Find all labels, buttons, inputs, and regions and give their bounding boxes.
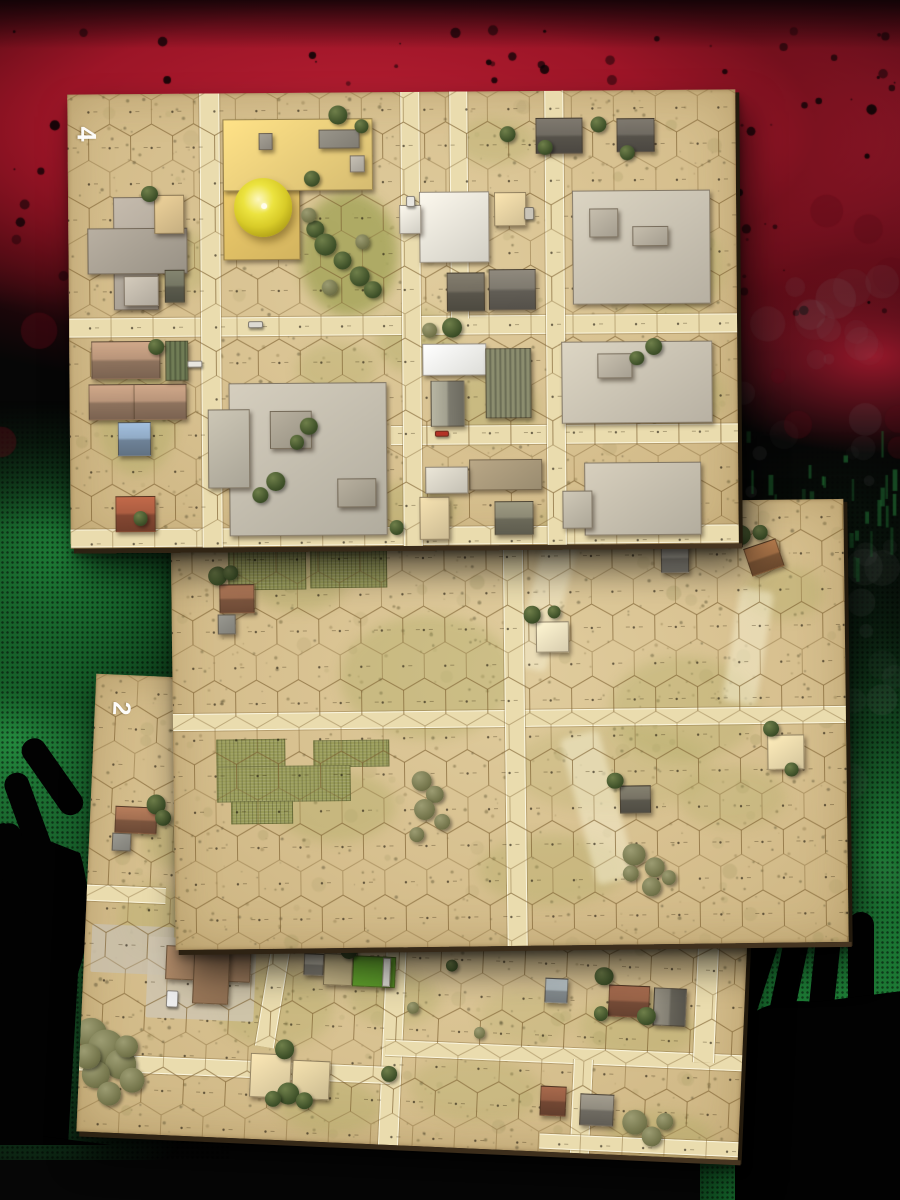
building-white-flat-building: [423, 344, 487, 376]
town-map-board: 4: [67, 89, 739, 548]
tree: [499, 126, 515, 142]
building-complex-bottom-right: [584, 461, 702, 535]
building-barracks-c: [134, 383, 187, 420]
building-wooden-building-wing: [192, 947, 231, 1005]
building-industrial-inner-b: [337, 478, 376, 508]
building-cross-building-court: [123, 276, 159, 306]
tree: [155, 809, 172, 826]
tree: [141, 186, 157, 202]
building-pyramid-roof-house: [495, 501, 534, 535]
map-features: [170, 499, 848, 950]
map-number-label: 4: [70, 126, 101, 141]
tree: [442, 318, 462, 338]
tree: [785, 763, 799, 777]
tree: [593, 1006, 608, 1021]
building-mosque-roof-hut-a: [259, 133, 273, 151]
building-small-house-right: [544, 978, 568, 1004]
vehicle-truck: [524, 207, 534, 220]
tree: [329, 106, 348, 125]
building-shed-left: [111, 832, 131, 851]
building-tan-compound: [420, 497, 450, 540]
building-cross-building-horizontal: [87, 228, 188, 275]
map-number-label: 2: [106, 701, 136, 716]
building-green-long-building: [485, 348, 532, 418]
tree: [315, 234, 337, 256]
vehicle-red-car: [435, 430, 450, 437]
building-green-building: [165, 340, 189, 380]
shrub: [422, 323, 437, 338]
building-farm-shed: [217, 614, 235, 634]
shrub: [407, 1001, 419, 1013]
building-dark-roof-house-b: [488, 269, 536, 310]
building-green-roof-white-strip: [382, 958, 391, 987]
desert-map-board: [170, 499, 848, 950]
building-mosque-roof-hut-b: [319, 130, 360, 149]
shrub: [661, 870, 676, 885]
vehicle-white-car-a: [187, 361, 202, 368]
building-t-building-arm: [399, 204, 421, 233]
building-small-gray-house: [303, 953, 324, 976]
tree: [267, 472, 286, 491]
building-complex-br-arm: [562, 490, 592, 529]
building-brick-building: [470, 459, 543, 491]
tree: [538, 140, 553, 155]
building-t-building-white: [419, 192, 490, 264]
building-mosque-roof-hut-c: [350, 155, 365, 173]
building-center-house: [536, 621, 569, 653]
building-industrial-complex-arm: [207, 409, 250, 488]
building-complex-tr-inner-a: [589, 208, 618, 237]
tree: [364, 281, 381, 298]
raised-fist-right-icon: [735, 912, 900, 1200]
building-house-bottom-center: [619, 786, 651, 814]
building-gray-shed: [431, 381, 465, 427]
shrub: [115, 1034, 138, 1057]
map-features: [67, 89, 739, 548]
vehicle-white-car-b: [248, 321, 263, 328]
shrub: [642, 877, 661, 896]
shrub: [409, 827, 424, 842]
tree: [607, 773, 623, 789]
building-dark-shed: [164, 270, 185, 303]
building-complex-top-right: [572, 189, 710, 304]
vehicle-white-truck: [166, 990, 179, 1008]
building-blue-roof-house: [118, 422, 151, 456]
tree: [753, 525, 768, 540]
hex-grid: [170, 499, 848, 950]
building-tan-duplex: [494, 192, 526, 226]
building-gray-house-right: [652, 987, 687, 1027]
vehicle-white-van: [406, 195, 415, 207]
building-complex-tr-inner-b: [633, 226, 669, 246]
building-white-shed: [425, 466, 469, 494]
building-industrial-complex-main: [228, 382, 387, 537]
building-barracks-b: [89, 384, 140, 421]
building-dark-roof-house-a: [447, 272, 485, 312]
building-farmhouse: [220, 584, 255, 613]
building-complex-mr-inner: [597, 354, 633, 379]
shrub: [321, 280, 337, 296]
building-tan-house: [154, 195, 184, 234]
building-brown-house-bottom: [540, 1086, 567, 1117]
shrub: [301, 208, 316, 223]
building-gray-house-bottom: [579, 1093, 614, 1127]
tree: [524, 606, 542, 624]
scene: 2 4: [0, 0, 900, 1200]
